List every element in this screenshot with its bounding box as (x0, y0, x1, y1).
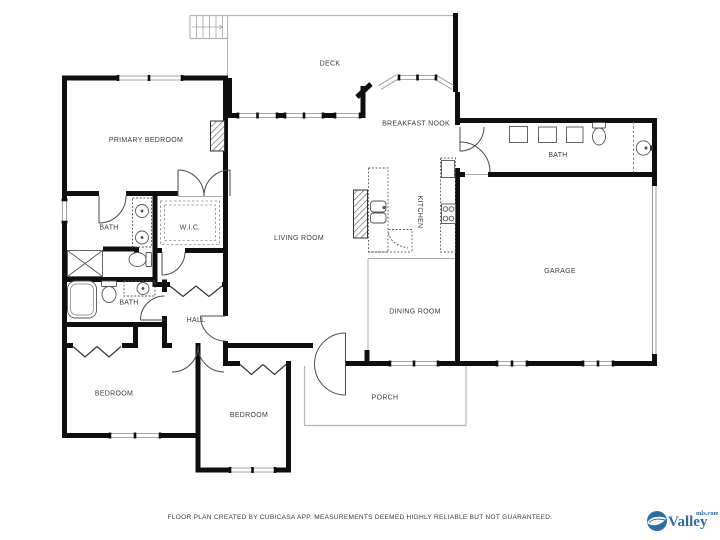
room-label-bedroom-middle: BEDROOM (230, 412, 268, 419)
room-label-bath-primary: BATH (99, 225, 118, 232)
cabinet-icon (539, 127, 557, 143)
fireplace-living-room (354, 190, 368, 238)
cabinet-icon (567, 127, 584, 143)
room-label-bath-top-right: BATH (548, 152, 567, 159)
room-label-porch: PORCH (372, 395, 399, 402)
shower-icon (68, 251, 103, 277)
bathtub-icon (68, 281, 97, 318)
closet-lines-wic (161, 201, 220, 245)
walls (62, 13, 657, 473)
stove-icon (442, 204, 456, 224)
garage-door (653, 186, 657, 354)
sink-icon (636, 141, 650, 155)
valley-mls-logo: Valley mls.com (644, 505, 718, 535)
toilet-icon (593, 123, 606, 146)
fixtures-kitchen (369, 158, 456, 252)
fireplace-hatches (211, 121, 368, 238)
floor-plan-svg: DECK PRIMARY BEDROOM BREAKFAST NOOK BATH… (0, 0, 720, 540)
toilet-icon (129, 253, 152, 267)
fireplace-primary-bedroom (211, 121, 225, 151)
valley-mls-suffix-text: mls.com (696, 510, 718, 517)
fridge-icon (442, 161, 455, 178)
floor-plan-page: DECK PRIMARY BEDROOM BREAKFAST NOOK BATH… (0, 0, 720, 540)
fixtures-bath-primary (68, 198, 152, 277)
room-label-hall: HALL (187, 317, 206, 324)
windows (62, 75, 615, 474)
footer-disclaimer: FLOOR PLAN CREATED BY CUBICASA APP. MEAS… (0, 514, 720, 521)
room-label-kitchen: KITCHEN (416, 196, 423, 229)
room-label-garage: GARAGE (544, 268, 576, 275)
room-label-living-room: LIVING ROOM (274, 235, 324, 242)
toilet-icon (102, 281, 117, 303)
room-label-deck: DECK (320, 61, 341, 68)
deck-stairs (192, 16, 223, 39)
room-label-wic: W.I.C. (180, 225, 201, 232)
cabinet-icon (510, 127, 528, 143)
walls-right-wing (228, 13, 657, 366)
room-label-dining-room: DINING ROOM (389, 309, 441, 316)
room-label-bedroom-left: BEDROOM (95, 391, 133, 398)
room-label-bath-hall: BATH (119, 300, 138, 307)
kitchen-sink-icon (371, 201, 387, 223)
valley-mls-globe-icon (647, 511, 667, 531)
door-arcs (99, 127, 490, 395)
fixtures-bath-top-right (510, 122, 654, 173)
room-label-breakfast-nook: BREAKFAST NOOK (382, 121, 450, 128)
window-caps (62, 75, 615, 474)
room-label-primary-bedroom: PRIMARY BEDROOM (109, 137, 183, 144)
